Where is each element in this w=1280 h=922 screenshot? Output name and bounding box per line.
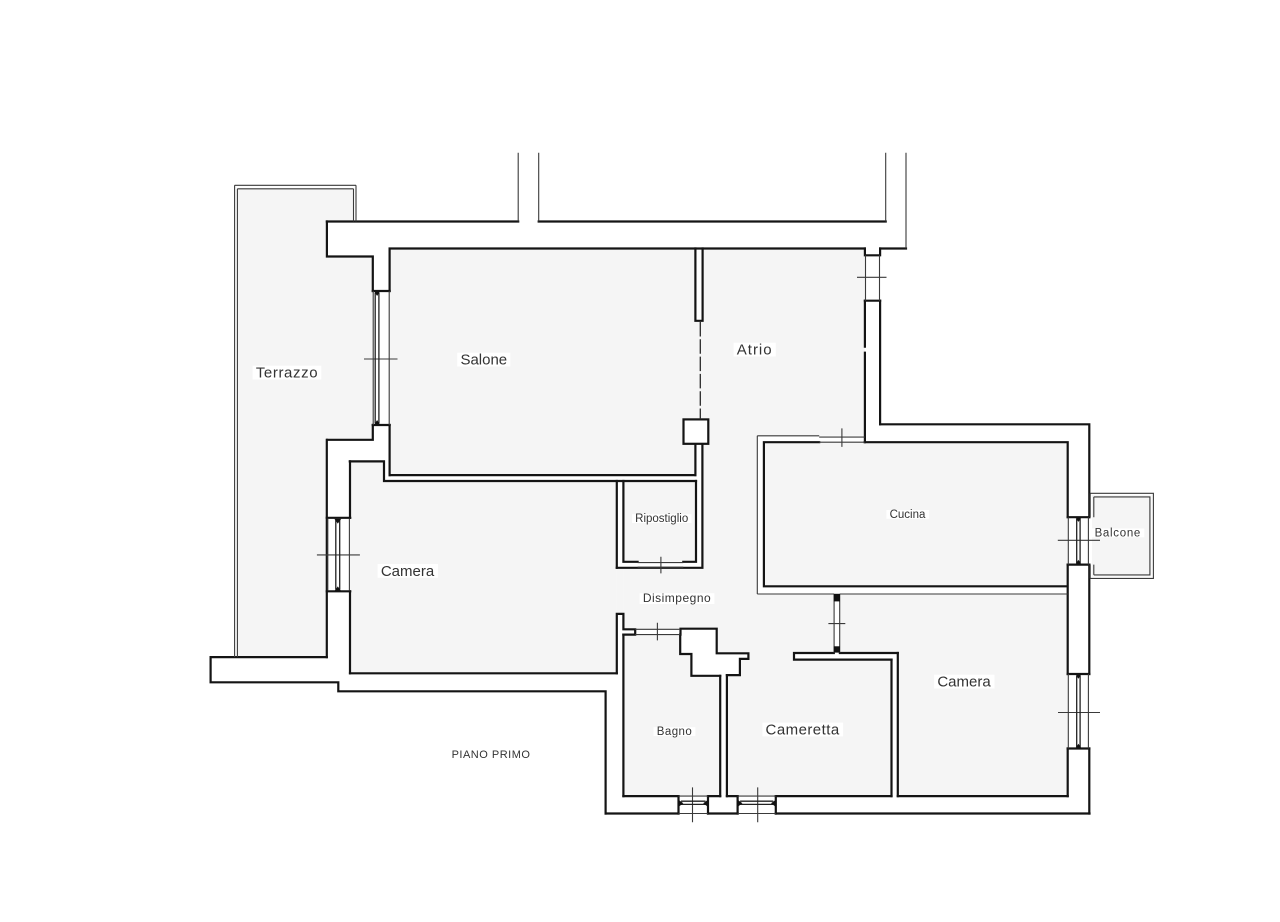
- svg-text:Cucina: Cucina: [890, 509, 926, 521]
- svg-text:Balcone: Balcone: [1095, 527, 1141, 539]
- svg-text:Disimpegno: Disimpegno: [643, 591, 711, 605]
- svg-text:Atrio: Atrio: [737, 342, 773, 359]
- svg-text:Terrazzo: Terrazzo: [256, 365, 318, 382]
- svg-text:Bagno: Bagno: [657, 726, 693, 738]
- svg-text:PIANO PRIMO: PIANO PRIMO: [452, 749, 531, 761]
- svg-text:Ripostiglio: Ripostiglio: [635, 513, 688, 525]
- svg-text:Cameretta: Cameretta: [766, 721, 840, 738]
- svg-text:Camera: Camera: [937, 674, 991, 691]
- svg-text:Camera: Camera: [381, 563, 435, 580]
- svg-text:Salone: Salone: [460, 352, 507, 369]
